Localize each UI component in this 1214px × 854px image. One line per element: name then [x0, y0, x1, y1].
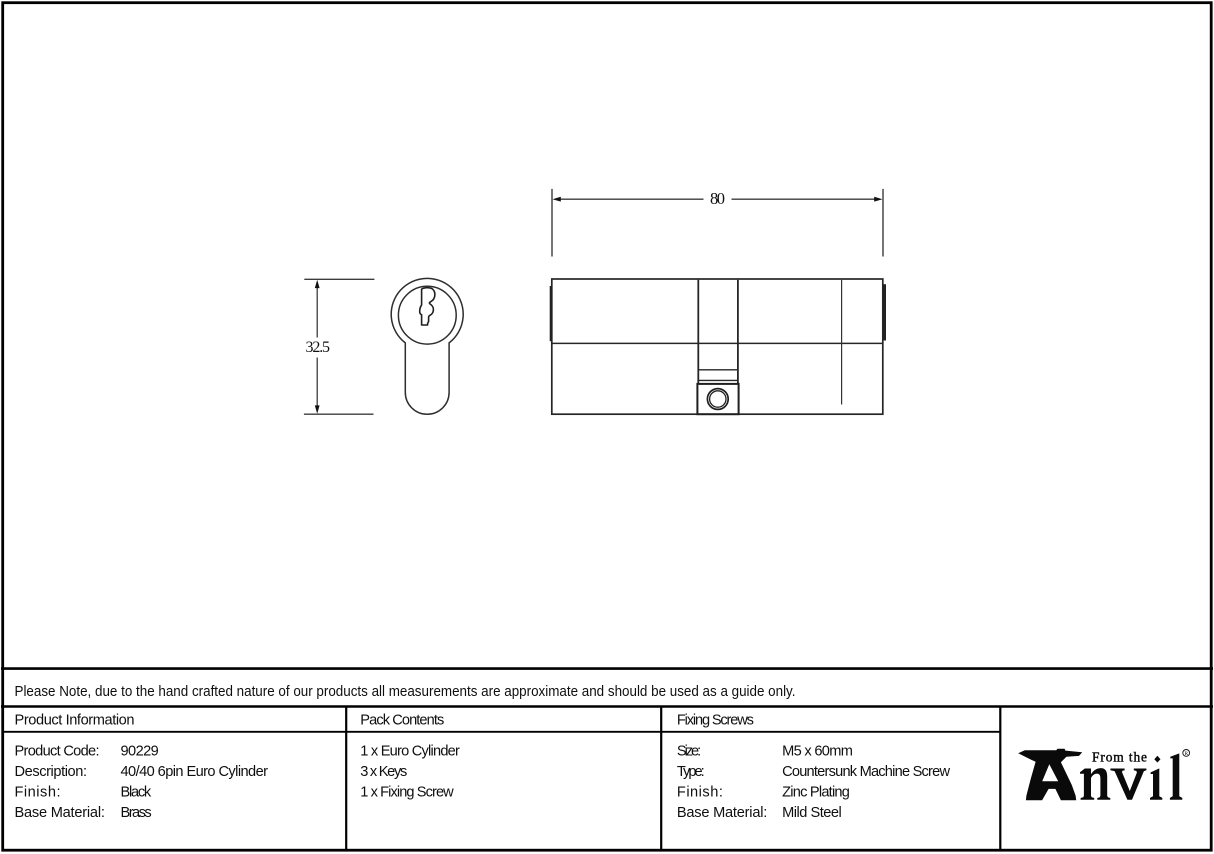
svg-text:Zinc Plating: Zinc Plating	[782, 784, 850, 800]
svg-text:80: 80	[710, 189, 725, 208]
svg-text:From the: From the	[1092, 750, 1147, 765]
svg-text:1 x Euro Cylinder: 1 x Euro Cylinder	[360, 743, 460, 759]
svg-text:R: R	[1184, 751, 1188, 757]
svg-text:Countersunk Machine Screw: Countersunk Machine Screw	[782, 764, 950, 780]
svg-text:Product Code:: Product Code:	[15, 743, 100, 759]
svg-text:Base Material:: Base Material:	[677, 805, 767, 821]
svg-text:Please Note, due to the hand c: Please Note, due to the hand crafted nat…	[15, 684, 796, 700]
svg-text:Black: Black	[121, 784, 152, 800]
svg-text:Pack Contents: Pack Contents	[360, 713, 444, 729]
svg-text:Base Material:: Base Material:	[15, 805, 105, 821]
svg-text:Size:: Size:	[677, 743, 701, 759]
svg-text:Fixing Screws: Fixing Screws	[677, 713, 754, 729]
svg-text:32.5: 32.5	[306, 339, 331, 356]
svg-text:90229: 90229	[121, 743, 159, 759]
svg-text:Mild Steel: Mild Steel	[782, 805, 842, 821]
svg-text:Brass: Brass	[121, 805, 152, 821]
svg-text:Finish:: Finish:	[677, 784, 723, 800]
svg-text:40/40 6pin Euro Cylinder: 40/40 6pin Euro Cylinder	[121, 764, 269, 780]
svg-text:Type:: Type:	[677, 764, 705, 780]
svg-text:Product Information: Product Information	[15, 713, 135, 729]
svg-text:Finish:: Finish:	[15, 784, 61, 800]
svg-text:3 x Keys: 3 x Keys	[360, 764, 407, 780]
svg-text:Description:: Description:	[15, 764, 88, 780]
svg-text:M5 x 60mm: M5 x 60mm	[782, 743, 853, 759]
svg-text:1 x Fixing Screw: 1 x Fixing Screw	[360, 784, 454, 800]
